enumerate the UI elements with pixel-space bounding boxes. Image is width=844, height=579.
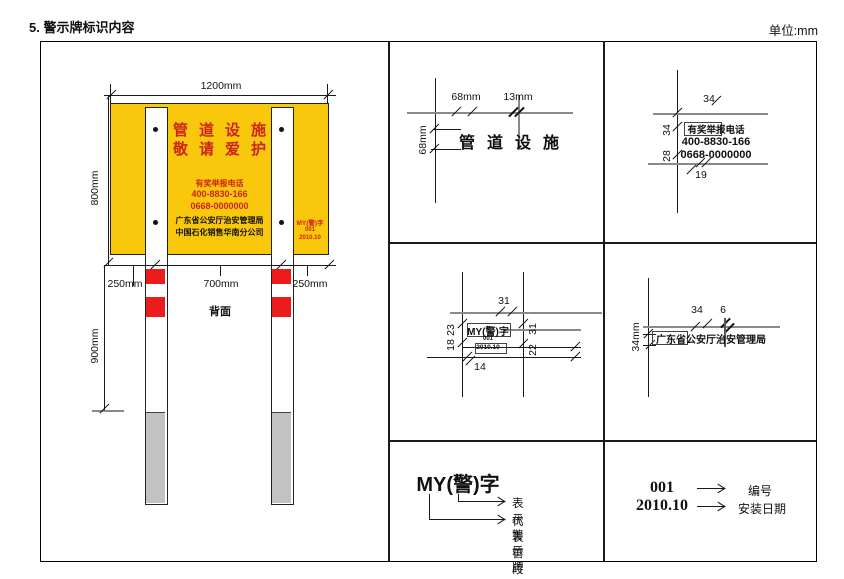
detail-code-line3: 2010.10	[470, 344, 506, 351]
buried-section	[146, 412, 165, 503]
dim-top: 31	[484, 295, 524, 307]
dim-gap: 13mm	[498, 91, 538, 103]
page-title: 5. 警示牌标识内容	[29, 17, 134, 36]
dim-line-width	[104, 95, 336, 96]
board-hotline-caption: 有奖举报电话	[150, 178, 289, 189]
dim-label-width: 1200mm	[181, 80, 261, 92]
board-org2: 中国石化销售华南分公司	[150, 227, 289, 238]
extension-line	[220, 265, 221, 276]
extension-line	[431, 149, 461, 150]
legend-number: 001	[632, 479, 692, 497]
detail-phone-line2: 400-8830-166	[676, 136, 756, 148]
dim-line-height	[108, 95, 109, 265]
dim-bottom: 19	[688, 169, 714, 181]
leader-line	[429, 519, 505, 520]
red-band	[272, 297, 291, 317]
dim-char: 34	[677, 304, 717, 316]
buried-section	[272, 412, 291, 503]
back-side-label: 背面	[198, 303, 242, 319]
extension-line	[307, 265, 308, 276]
grid-divider-vertical-1	[388, 41, 390, 562]
dim-char-height: 68mm	[417, 120, 429, 160]
legend-date: 2010.10	[623, 497, 701, 515]
construction-line	[407, 112, 573, 114]
detail-title-text: 管道设施	[459, 129, 571, 153]
dim-left-lower: 18	[445, 325, 457, 365]
board-title-line1: 管道设施	[150, 119, 289, 140]
board-code3: 2010.10	[293, 235, 327, 241]
leader-line	[458, 501, 505, 502]
grid-divider-vertical-2	[603, 41, 605, 562]
extension-line	[433, 129, 461, 130]
dim-label-seg-left: 250mm	[103, 278, 147, 290]
board-phone2: 0668-0000000	[150, 201, 289, 211]
red-band	[146, 269, 165, 284]
leader-line	[429, 494, 430, 520]
drawing-page: 5. 警示牌标识内容 单位:mm 管道设施 敬请爱护 有奖举报电话 400-88…	[0, 0, 844, 579]
grid-divider-horizontal-1	[388, 242, 816, 244]
board-code2: 001	[293, 227, 327, 233]
board-code1: MY(警)字	[293, 217, 327, 227]
detail-phone-line1: 有奖举报电话	[680, 122, 752, 136]
dim-left-lower: 28	[661, 136, 673, 176]
construction-line	[503, 329, 581, 331]
legend-code-text: MY(警)字	[408, 468, 508, 497]
construction-line	[523, 272, 524, 397]
dim-gap: 6	[713, 304, 733, 316]
construction-line	[648, 278, 649, 397]
dim-char-width: 68mm	[446, 91, 486, 103]
legend-date-label: 安装日期	[734, 500, 790, 517]
unit-label: 单位:mm	[730, 20, 818, 39]
dim-bottom: 14	[466, 361, 494, 373]
board-org1: 广东省公安厅治安管理局	[150, 215, 289, 226]
dim-height: 34mm	[630, 317, 642, 357]
dim-top: 34	[689, 93, 729, 105]
board-phone1: 400-8830-166	[150, 189, 289, 199]
construction-line	[450, 312, 602, 314]
dim-line-depth	[104, 265, 105, 410]
construction-line	[643, 326, 780, 328]
legend-arrow2-label: 代表管段	[512, 513, 524, 577]
dim-right-lower: 22	[527, 330, 539, 370]
dim-label-seg-mid: 700mm	[199, 278, 243, 290]
dim-label-seg-right: 250mm	[288, 278, 332, 290]
dim-label-height: 800mm	[89, 168, 101, 208]
detail-code-line2: 001	[472, 336, 504, 342]
grid-divider-horizontal-2	[388, 440, 816, 442]
dim-label-depth: 900mm	[89, 326, 101, 366]
detail-phone-line3: 0668-0000000	[676, 149, 756, 161]
detail-org-text: 广东省公安厅治安管理局	[650, 331, 772, 346]
legend-number-label: 编号	[740, 482, 780, 499]
red-band	[146, 297, 165, 317]
ground-line	[92, 410, 124, 412]
board-title-line2: 敬请爱护	[150, 138, 289, 159]
construction-line	[435, 78, 436, 203]
